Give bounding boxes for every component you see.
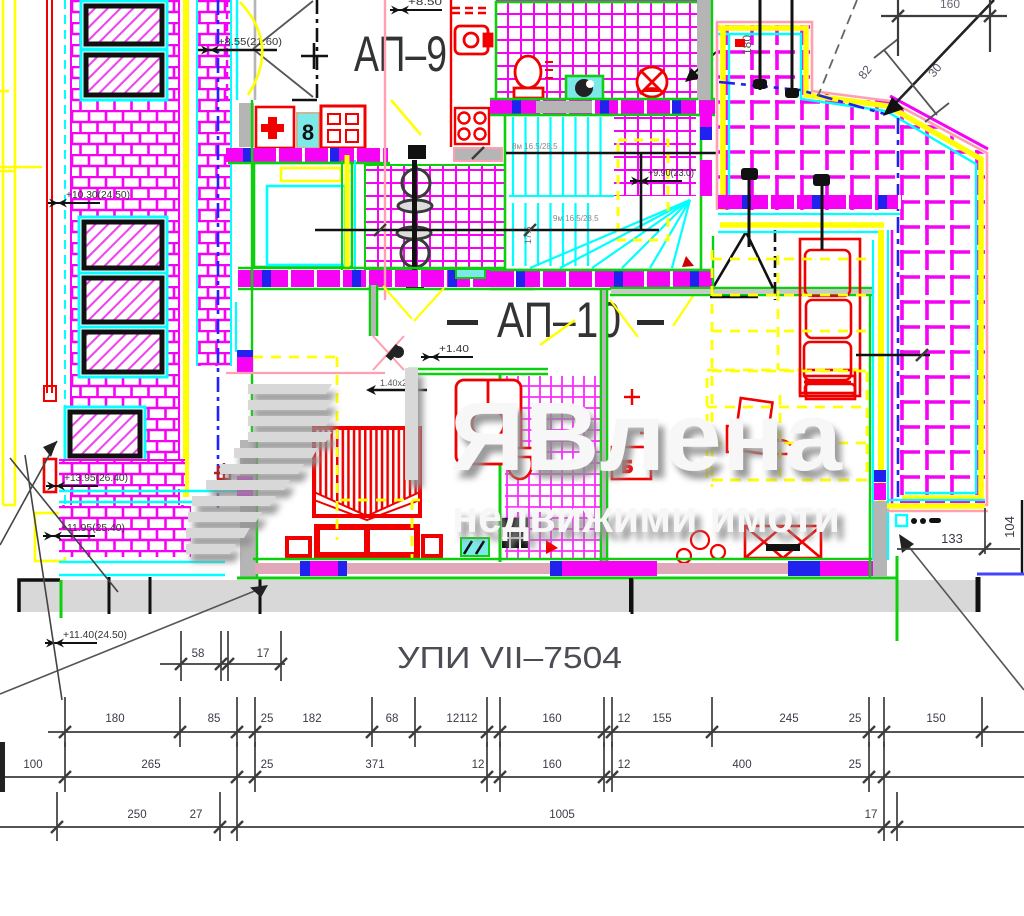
svg-text:12112: 12112	[446, 713, 477, 725]
svg-text:150: 150	[926, 713, 945, 725]
svg-text:+1.40: +1.40	[439, 344, 470, 355]
svg-text:недвижими имоти: недвижими имоти	[452, 491, 840, 542]
svg-text:100: 100	[23, 759, 42, 771]
svg-text:8: 8	[302, 120, 314, 145]
svg-text:1005: 1005	[549, 809, 575, 821]
svg-text:160: 160	[542, 759, 561, 771]
svg-text:12: 12	[618, 713, 631, 725]
svg-text:+9.90(23.0): +9.90(23.0)	[648, 168, 694, 179]
svg-text:+8.55(21.60): +8.55(21.60)	[218, 37, 282, 48]
svg-text:58: 58	[192, 648, 205, 660]
svg-text:25: 25	[261, 759, 274, 771]
svg-text:12: 12	[472, 759, 485, 771]
svg-text:265: 265	[141, 759, 160, 771]
svg-text:250: 250	[127, 809, 146, 821]
svg-text:+8.50: +8.50	[408, 0, 443, 8]
svg-text:+13.95(26.40): +13.95(26.40)	[64, 473, 128, 484]
svg-text:27: 27	[190, 809, 203, 821]
svg-text:9м 16.5/28.5: 9м 16.5/28.5	[553, 214, 599, 223]
svg-text:25: 25	[849, 713, 862, 725]
svg-text:8м 16.5/28.5: 8м 16.5/28.5	[512, 142, 558, 151]
svg-text:160: 160	[542, 713, 561, 725]
svg-text:104: 104	[1002, 516, 1017, 538]
svg-text:180: 180	[105, 713, 124, 725]
svg-text:182: 182	[302, 713, 321, 725]
svg-text:+10.30(24.50): +10.30(24.50)	[66, 190, 130, 201]
svg-text:25: 25	[261, 713, 274, 725]
svg-text:160: 160	[940, 0, 960, 11]
svg-text:155: 155	[652, 713, 671, 725]
svg-text:85: 85	[208, 713, 221, 725]
svg-text:ЯВлена: ЯВлена	[450, 382, 843, 491]
svg-text:25: 25	[849, 759, 862, 771]
svg-text:12: 12	[618, 759, 631, 771]
svg-text:400: 400	[732, 759, 751, 771]
svg-text:УПИ VII–7504: УПИ VII–7504	[397, 640, 622, 675]
svg-text:133: 133	[941, 531, 963, 546]
svg-text:АП–9: АП–9	[354, 26, 447, 82]
svg-text:245: 245	[779, 713, 798, 725]
svg-text:68: 68	[386, 713, 399, 725]
svg-text:+11.40(24.50): +11.40(24.50)	[63, 630, 127, 641]
svg-text:17: 17	[865, 809, 878, 821]
svg-text:371: 371	[365, 759, 384, 771]
svg-text:17: 17	[257, 648, 270, 660]
svg-text:1.40х2: 1.40х2	[380, 378, 407, 388]
